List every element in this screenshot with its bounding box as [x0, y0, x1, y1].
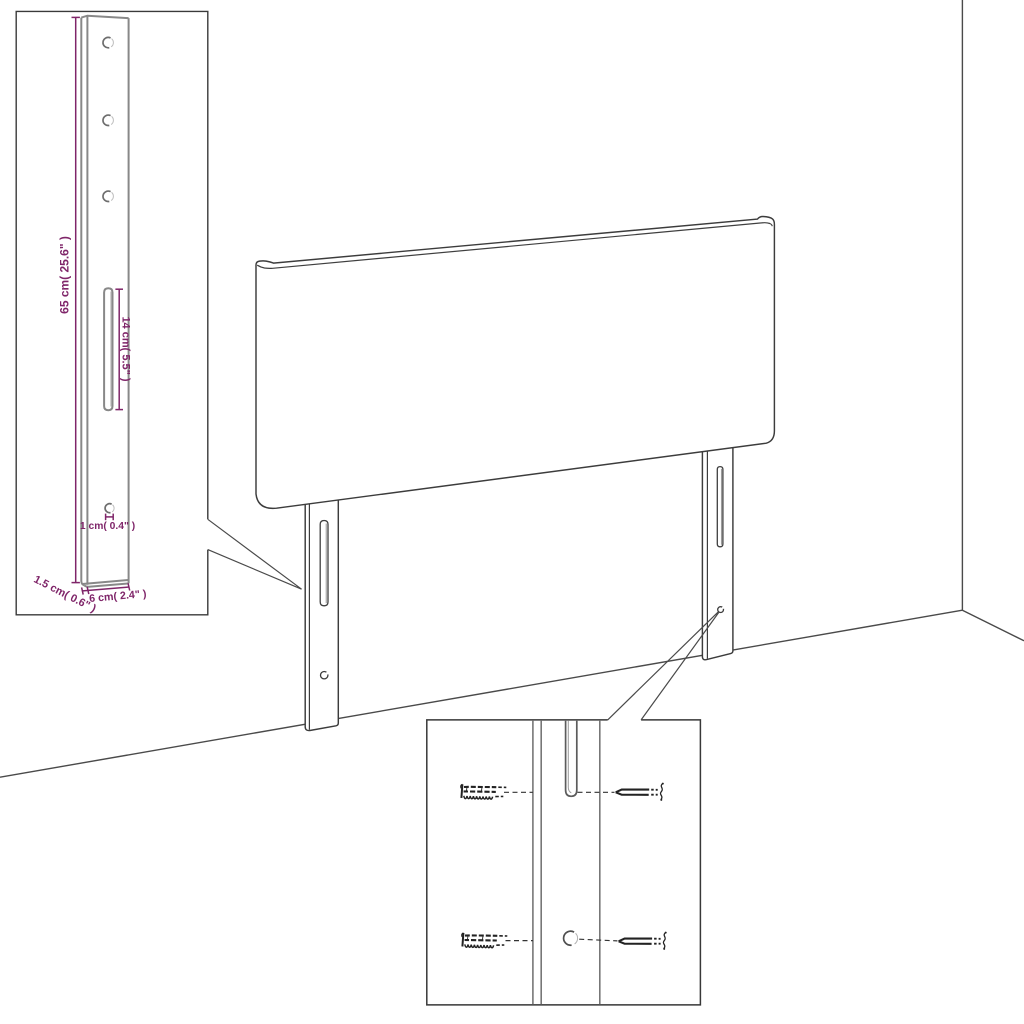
svg-text:14 cm( 5.5" ): 14 cm( 5.5" ) — [119, 316, 131, 381]
svg-text:6 cm( 2.4" ): 6 cm( 2.4" ) — [89, 588, 148, 605]
svg-text:1 cm( 0.4" ): 1 cm( 0.4" ) — [80, 521, 135, 532]
svg-text:65 cm( 25.6" ): 65 cm( 25.6" ) — [57, 236, 71, 314]
